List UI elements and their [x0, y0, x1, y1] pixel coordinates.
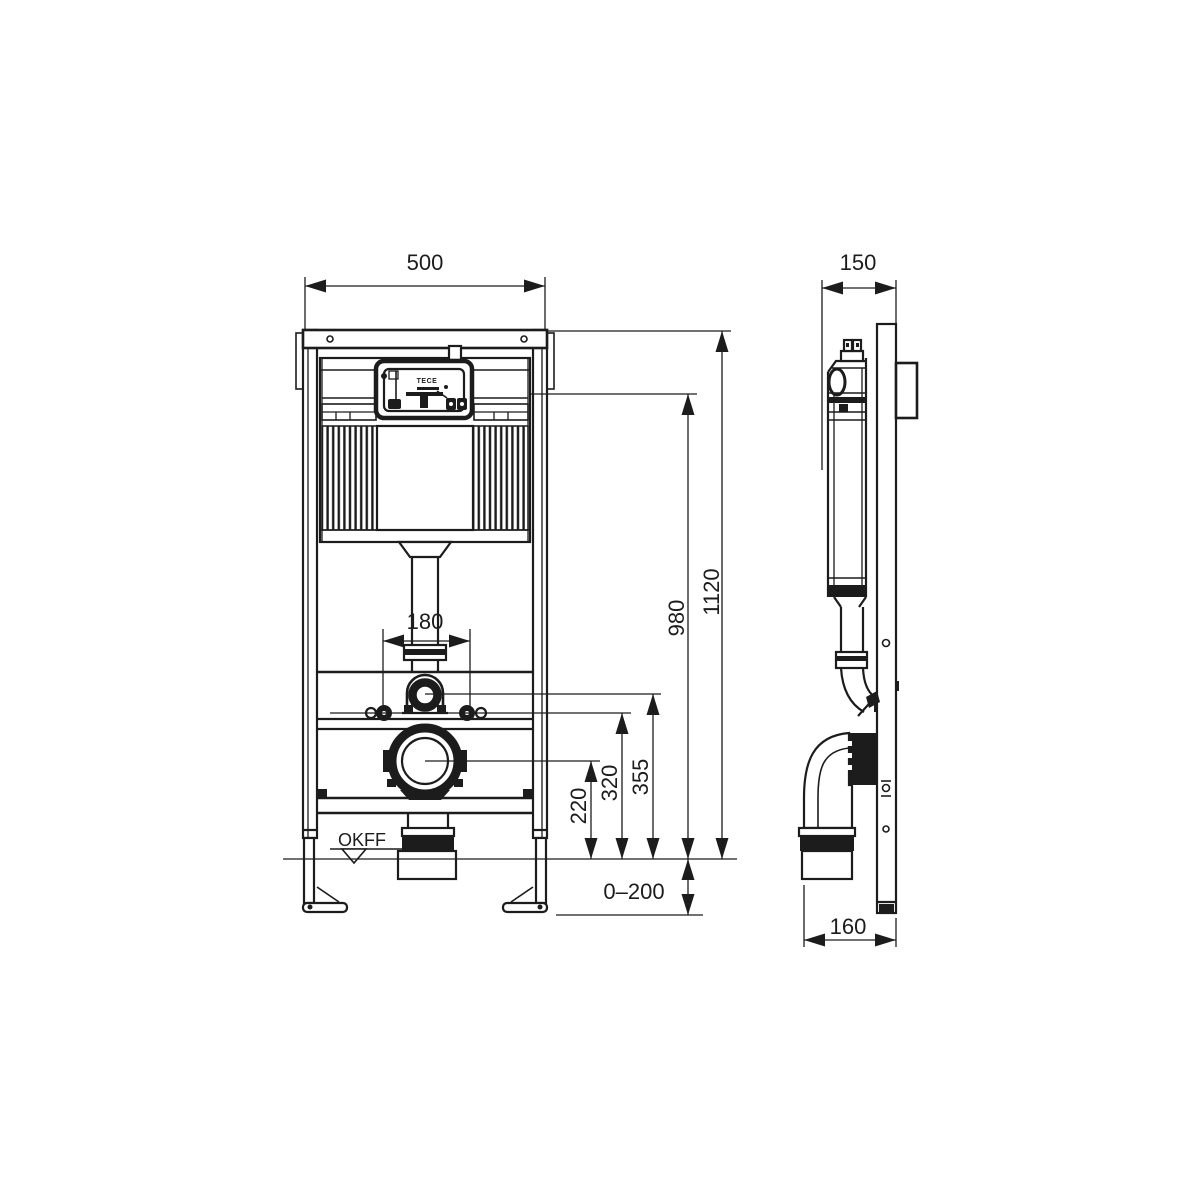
flush-service-box: TECE — [376, 361, 472, 418]
cistern-center-panel — [377, 426, 473, 530]
cistern-bottom-band — [828, 585, 866, 597]
cistern-side — [828, 340, 866, 607]
dim-bolt-spacing: 180 — [407, 609, 444, 634]
screw-hole-left — [327, 336, 333, 342]
screw-hole-right — [521, 336, 527, 342]
dim-inlet-height: 355 — [628, 759, 653, 796]
wall-bracket — [896, 363, 917, 418]
drain-outlet-front — [383, 728, 467, 800]
floor-level-label: OKFF — [338, 830, 386, 850]
dim-height: 1120 — [699, 568, 724, 615]
fill-valve-base — [841, 351, 863, 361]
drain-pipe-front — [398, 813, 456, 879]
flush-pipe-front — [399, 542, 451, 672]
rail-end-cap — [879, 904, 894, 912]
frame-top-crossbar — [303, 330, 547, 348]
side-view — [799, 324, 917, 913]
technical-drawing-page: TECE — [0, 0, 1200, 1200]
cistern-ribs-right — [473, 426, 528, 530]
flush-pipe-side — [836, 607, 880, 716]
brand-logo: TECE — [417, 378, 438, 385]
cistern-top-stub — [449, 346, 461, 360]
level-triangle-icon — [342, 849, 366, 863]
drain-socket-side — [802, 851, 852, 879]
installation-frame-drawing: TECE — [0, 0, 1200, 1200]
dim-flush-unit-height: 980 — [664, 600, 689, 637]
dim-outlet-depth: 160 — [830, 914, 867, 939]
flush-valve-port — [829, 369, 845, 395]
corrugated-connector — [849, 733, 877, 785]
dim-outlet-height: 220 — [566, 788, 591, 825]
cistern-ribs-left — [322, 426, 377, 530]
dim-floor-adjust: 0–200 — [603, 879, 664, 904]
drain-bend-side — [799, 733, 877, 879]
dim-bolt-height: 320 — [597, 765, 622, 802]
dim-width: 500 — [407, 250, 444, 275]
dim-depth: 150 — [840, 250, 877, 275]
